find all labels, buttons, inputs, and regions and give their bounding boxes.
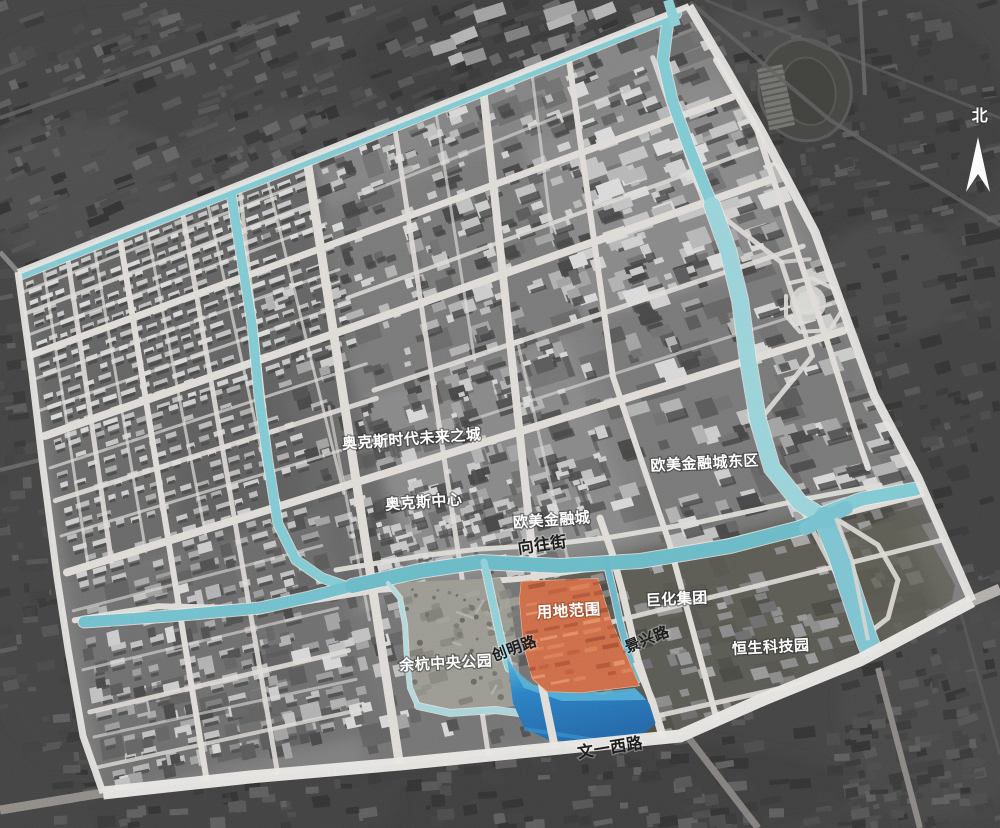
svg-text:北: 北 <box>972 107 989 125</box>
svg-text:巨化集团: 巨化集团 <box>645 588 708 609</box>
